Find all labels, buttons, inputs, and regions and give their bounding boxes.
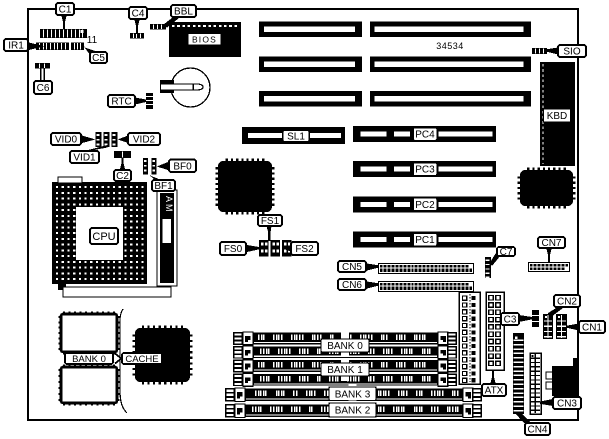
- svg-text:FS1: FS1: [261, 216, 280, 227]
- svg-text:C7: C7: [500, 247, 513, 258]
- svg-text:BANK 2: BANK 2: [335, 406, 371, 417]
- svg-text:C3: C3: [504, 315, 517, 326]
- svg-text:C5: C5: [92, 53, 105, 64]
- svg-text:CN1: CN1: [582, 323, 602, 334]
- svg-text:BANK 0: BANK 0: [72, 354, 106, 365]
- svg-text:VID0: VID0: [55, 135, 78, 146]
- svg-text:KBD: KBD: [547, 111, 568, 122]
- svg-text:VID1: VID1: [73, 153, 96, 164]
- svg-text:IR1: IR1: [8, 41, 24, 52]
- svg-text:PC3: PC3: [415, 165, 435, 176]
- svg-text:11: 11: [87, 35, 98, 46]
- svg-text:CACHE: CACHE: [125, 354, 158, 365]
- svg-text:SL1: SL1: [287, 132, 305, 143]
- svg-text:PC2: PC2: [415, 200, 435, 211]
- svg-text:SIO: SIO: [563, 47, 580, 58]
- svg-text:34534: 34534: [436, 41, 464, 51]
- svg-text:BF1: BF1: [154, 181, 173, 192]
- svg-text:BF0: BF0: [173, 161, 192, 172]
- svg-text:RTC: RTC: [111, 97, 131, 108]
- svg-text:BIOS: BIOS: [192, 35, 217, 45]
- svg-text:ATX: ATX: [485, 386, 504, 397]
- svg-text:AM: AM: [164, 196, 174, 214]
- svg-text:BANK 1: BANK 1: [327, 365, 363, 376]
- svg-text:CN7: CN7: [541, 238, 561, 249]
- svg-text:BBL: BBL: [174, 7, 193, 18]
- svg-text:C4: C4: [132, 9, 145, 20]
- svg-text:C1: C1: [59, 5, 72, 16]
- svg-text:FS0: FS0: [224, 244, 243, 255]
- svg-text:FS2: FS2: [295, 244, 314, 255]
- svg-text:VID2: VID2: [133, 135, 156, 146]
- svg-text:CN4: CN4: [527, 425, 547, 436]
- svg-text:CN2: CN2: [557, 297, 577, 308]
- svg-text:C2: C2: [116, 171, 129, 182]
- svg-text:CN3: CN3: [557, 399, 577, 410]
- svg-text:BANK 3: BANK 3: [335, 389, 371, 400]
- svg-text:PC1: PC1: [415, 235, 435, 246]
- svg-text:PC4: PC4: [415, 130, 435, 141]
- svg-text:BANK 0: BANK 0: [327, 341, 363, 352]
- svg-text:CPU: CPU: [92, 231, 115, 243]
- svg-text:CN6: CN6: [342, 280, 362, 291]
- svg-text:C6: C6: [37, 83, 50, 94]
- svg-text:CN5: CN5: [342, 262, 362, 273]
